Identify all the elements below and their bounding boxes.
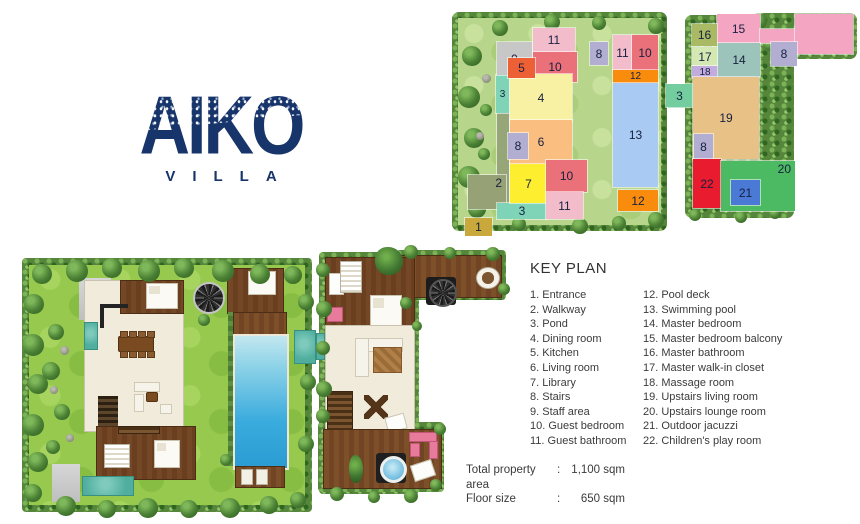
summary-row: Total property area:1,100 sqm: [466, 463, 625, 492]
room-block-11: 11: [546, 192, 583, 219]
tree: [198, 314, 210, 326]
tree: [316, 381, 332, 397]
room-block-17: 17: [692, 47, 718, 66]
key-plan-item: 11. Guest bathroom: [530, 434, 643, 449]
room-block-11: 11: [613, 35, 632, 70]
tree: [54, 404, 70, 420]
logo-title-stack: AIKO AIKO: [128, 84, 314, 160]
key-plan-item: 22. Children's play room: [643, 434, 782, 449]
room-block: [795, 14, 853, 54]
room-block-21: 21: [731, 180, 760, 205]
key-plan-item: 15. Master bedroom balcony: [643, 332, 782, 347]
property-summary: Total property area:1,100 sqmFloor size:…: [466, 463, 625, 507]
summary-label: Floor size: [466, 492, 557, 507]
key-plan-item: 12. Pool deck: [643, 288, 782, 303]
tree: [284, 266, 302, 284]
room-block-8: 8: [508, 133, 528, 159]
key-plan-column-1: 1. Entrance2. Walkway3. Pond4. Dining ro…: [530, 288, 643, 449]
summary-rows: Total property area:1,100 sqmFloor size:…: [466, 463, 625, 507]
room-block-12: 12: [618, 190, 658, 211]
tree: [430, 479, 442, 491]
tree: [46, 440, 60, 454]
key-plan-column-2: 12. Pool deck13. Swimming pool14. Master…: [643, 288, 782, 449]
key-plan-item: 18. Massage room: [643, 376, 782, 391]
tree: [316, 301, 332, 317]
tree: [498, 283, 510, 295]
tree: [32, 264, 52, 284]
tree: [486, 247, 500, 261]
tree: [24, 294, 44, 314]
tree: [102, 258, 122, 278]
key-plan-item: 16. Master bathroom: [643, 346, 782, 361]
summary-value: 1,100 sqm: [567, 463, 625, 492]
tree: [212, 260, 234, 282]
room-block-12: 12: [613, 70, 658, 83]
key-plan-item: 10. Guest bedroom: [530, 419, 643, 434]
key-plan: KEY PLAN 1. Entrance2. Walkway3. Pond4. …: [530, 260, 782, 449]
tree: [28, 452, 48, 472]
room-block-5: 5: [508, 58, 535, 78]
tree: [298, 294, 314, 310]
villa-logo: AIKO AIKO VILLA: [128, 84, 314, 185]
tree: [316, 263, 330, 277]
summary-separator: :: [557, 463, 567, 492]
room-block-10: 10: [546, 160, 587, 192]
room-block-8: 8: [771, 42, 797, 66]
tree: [316, 409, 330, 423]
room-block-1: 1: [465, 218, 492, 236]
key-plan-item: 13. Swimming pool: [643, 303, 782, 318]
tree: [298, 436, 314, 452]
key-plan-item: 4. Dining room: [530, 332, 643, 347]
tree: [404, 489, 418, 503]
summary-value: 650 sqm: [567, 492, 625, 507]
key-plan-item: 20. Upstairs lounge room: [643, 405, 782, 420]
summary-row: Floor size:650 sqm: [466, 492, 625, 507]
tree: [220, 498, 240, 518]
key-plan-item: 6. Living room: [530, 361, 643, 376]
room-block-16: 16: [692, 24, 717, 46]
tree: [138, 260, 160, 282]
key-plan-item: 8. Stairs: [530, 390, 643, 405]
tree: [400, 297, 412, 309]
room-block-14: 14: [718, 43, 760, 77]
tree: [56, 496, 76, 516]
rock: [66, 434, 74, 442]
key-plan-title: KEY PLAN: [530, 260, 782, 277]
room-block-11: 11: [533, 28, 575, 52]
key-plan-item: 3. Pond: [530, 317, 643, 332]
key-plan-item: 5. Kitchen: [530, 346, 643, 361]
tree: [48, 324, 64, 340]
tree: [180, 500, 198, 518]
key-plan-item: 9. Staff area: [530, 405, 643, 420]
room-block-3: 3: [497, 203, 547, 219]
tree: [22, 334, 44, 356]
room-block: [760, 29, 796, 43]
room-block-13: 13: [613, 83, 658, 187]
room-block-10: 10: [632, 35, 658, 70]
key-plan-item: 21. Outdoor jacuzzi: [643, 419, 782, 434]
tree: [412, 321, 422, 331]
tree: [434, 423, 446, 435]
rock: [60, 346, 69, 355]
key-plan-item: 2. Walkway: [530, 303, 643, 318]
tree: [260, 496, 278, 514]
rock: [50, 386, 58, 394]
upper-floor-schematic: 151617181483198222021: [665, 13, 858, 235]
key-plan-item: 19. Upstairs living room: [643, 390, 782, 405]
summary-label: Total property area: [466, 463, 557, 492]
room-block-3: 3: [666, 84, 693, 107]
tree: [368, 491, 380, 503]
key-plan-item: 17. Master walk-in closet: [643, 361, 782, 376]
tree: [290, 492, 306, 508]
key-plan-item: 1. Entrance: [530, 288, 643, 303]
ground-floor-plan: [22, 258, 314, 520]
tree: [174, 258, 194, 278]
key-plan-item: 7. Library: [530, 376, 643, 391]
summary-separator: :: [557, 492, 567, 507]
tree: [42, 362, 60, 380]
tree: [444, 247, 456, 259]
room-block-8: 8: [694, 134, 713, 159]
tree: [22, 414, 44, 436]
tree: [330, 487, 344, 501]
tree: [316, 341, 330, 355]
room-block-8: 8: [590, 42, 608, 65]
room-block-7: 7: [510, 164, 547, 203]
tree: [138, 498, 158, 518]
room-blocks: 213391110456871011811101213123: [452, 12, 694, 240]
tree: [220, 454, 232, 466]
key-plan-item: 14. Master bedroom: [643, 317, 782, 332]
room-block-4: 4: [510, 74, 572, 122]
tree: [24, 484, 42, 502]
tree: [66, 260, 88, 282]
room-blocks: 151617181483198222021: [665, 13, 858, 235]
tree: [404, 245, 418, 259]
room-block-15: 15: [717, 14, 760, 43]
tree: [98, 500, 116, 518]
room-block-3: 3: [496, 75, 509, 113]
room-block-22: 22: [693, 159, 721, 208]
ground-floor-schematic: 213391110456871011811101213123: [452, 12, 694, 240]
villa-brochure: AIKO AIKO VILLA 213391110456871011811101…: [0, 0, 860, 524]
tree: [250, 264, 270, 284]
tree: [300, 374, 316, 390]
garden-trees: [22, 258, 314, 520]
